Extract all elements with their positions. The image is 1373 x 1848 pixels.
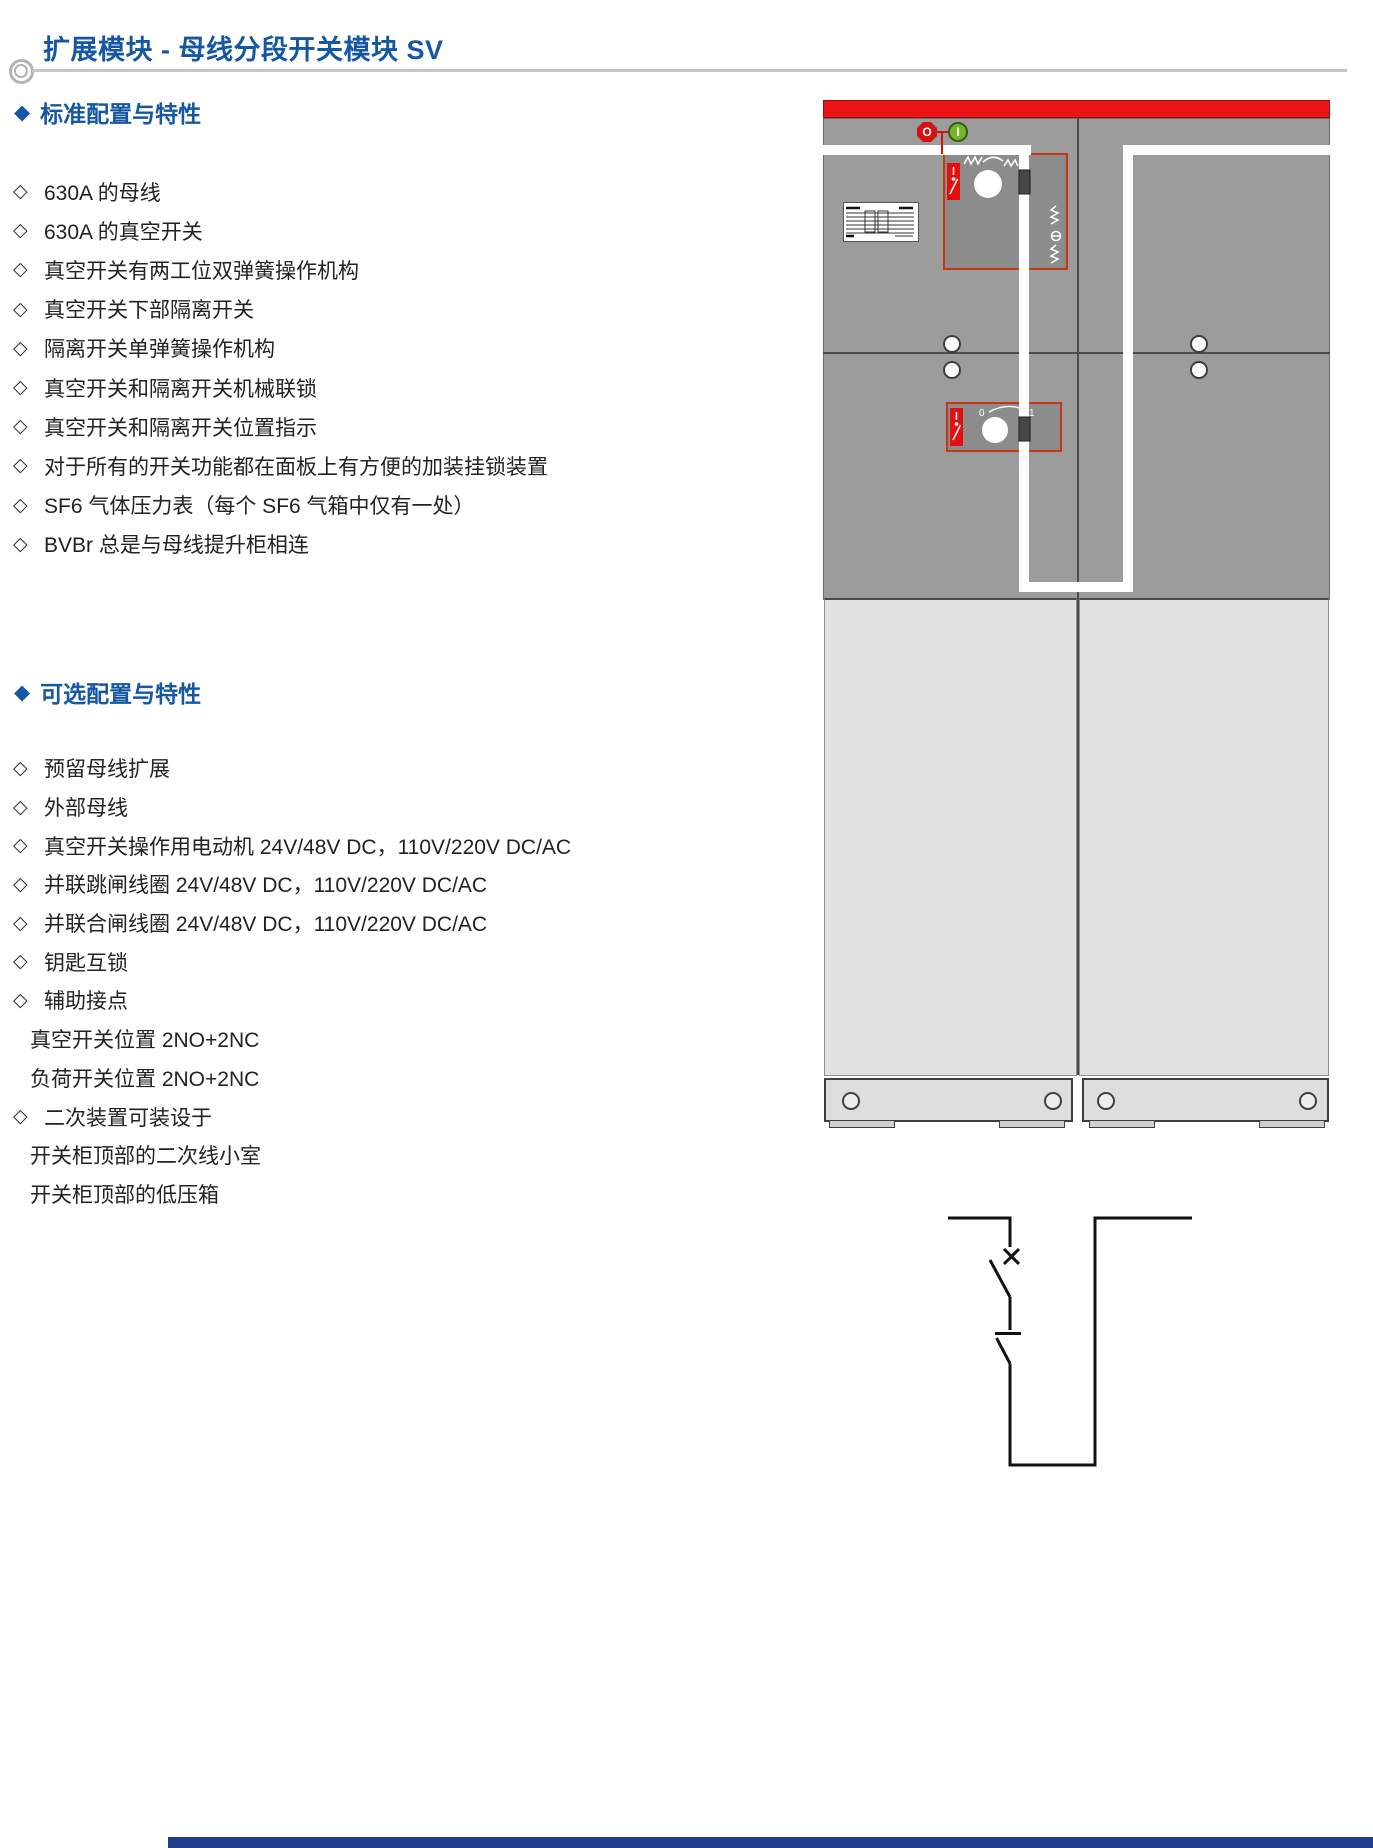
list-item: ◇真空开关下部隔离开关 [0,290,760,329]
switch-blade-upper [990,1260,1010,1297]
list-item: ◇630A 的母线 [0,172,760,211]
list-item: ◇对于所有的开关功能都在面板上有方便的加装挂锁装置 [0,446,760,485]
cabinet-foot [1259,1120,1325,1128]
plinth-bolt-icon [842,1092,860,1110]
disconnector-mechanism-box [946,402,1062,452]
feature-text: 开关柜顶部的二次线小室 [30,1140,261,1170]
list-item: ◇预留母线扩展 [0,749,760,788]
feature-text: 预留母线扩展 [44,753,170,783]
diamond-bullet-icon: ◇ [13,1105,35,1128]
feature-text: 真空开关和隔离开关位置指示 [44,412,317,442]
feature-text: BVBr 总是与母线提升柜相连 [44,529,309,559]
list-item: ◇630A 的真空开关 [0,211,760,250]
feature-text: 负荷开关位置 2NO+2NC [30,1063,259,1093]
off-pushbutton-icon: O [917,122,937,142]
on-pushbutton-icon: I [948,122,968,142]
section-heading-optional-config: ◆ 可选配置与特性 [14,677,201,707]
standard-feature-list: ◇630A 的母线 ◇630A 的真空开关 ◇真空开关有两工位双弹簧操作机构 ◇… [0,172,760,564]
cabinet-foot [829,1120,895,1128]
cabinet-right-lower-door [1079,598,1329,1076]
diamond-bullet-icon: ◇ [13,337,35,360]
feature-text: 隔离开关单弹簧操作机构 [44,333,275,363]
feature-text: 钥匙互锁 [44,947,128,977]
feature-text: 并联合闸线圈 24V/48V DC，110V/220V DC/AC [44,908,487,938]
plinth-bolt-icon [1044,1092,1062,1110]
header-ornament-inner-ring [14,64,28,78]
list-item: ◇并联合闸线圈 24V/48V DC，110V/220V DC/AC [0,904,760,943]
list-item: ◇隔离开关单弹簧操作机构 [0,329,760,368]
cabinet-red-top-bar [823,100,1330,118]
diamond-bullet-icon: ◇ [13,376,35,399]
cabinet-horizontal-seam [823,352,1330,354]
panel-screw-icon [1190,335,1208,353]
diamond-bullet-icon: ◇ [13,219,35,242]
vacuum-switch-symbol [1004,1249,1019,1264]
list-subitem: 负荷开关位置 2NO+2NC [0,1059,760,1098]
feature-text: 开关柜顶部的低压箱 [30,1179,219,1209]
diamond-bullet-icon: ◇ [13,873,35,896]
list-item: ◇钥匙互锁 [0,942,760,981]
diamond-bullet-icon: ◇ [13,757,35,780]
switchgear-front-view-figure: O I [823,100,1330,1130]
cabinet-panel-divider [1077,118,1079,1075]
section-heading-text: 标准配置与特性 [40,95,201,129]
feature-text: 对于所有的开关功能都在面板上有方便的加装挂锁装置 [44,451,548,481]
cabinet-left-plinth [824,1078,1073,1122]
list-subitem: 开关柜顶部的二次线小室 [0,1136,760,1175]
busbar-left-horizontal [823,145,1031,155]
busbar-bottom-connector [1019,582,1133,592]
rating-nameplate [843,202,919,242]
list-item: ◇二次装置可装设于 [0,1097,760,1136]
cabinet-foot [1089,1120,1155,1128]
list-item: ◇并联跳闸线圈 24V/48V DC，110V/220V DC/AC [0,865,760,904]
diamond-bullet-icon: ◇ [13,533,35,556]
plinth-bolt-icon [1097,1092,1115,1110]
footer-bar [168,1837,1373,1848]
section-heading-standard-config: ◆ 标准配置与特性 [14,97,201,127]
diamond-bullet-icon: ◇ [13,950,35,973]
panel-screw-icon [1190,361,1208,379]
list-item: ◇真空开关操作用电动机 24V/48V DC，110V/220V DC/AC [0,826,760,865]
diagram-bus-left [948,1218,1010,1247]
panel-screw-icon [943,335,961,353]
diamond-filled-icon: ◆ [14,100,30,125]
diagram-return-path [1010,1218,1192,1465]
page-title: 扩展模块 - 母线分段开关模块 SV [43,28,444,67]
list-item: ◇SF6 气体压力表（每个 SF6 气箱中仅有一处） [0,486,760,525]
feature-text: 二次装置可装设于 [44,1102,212,1132]
list-item: ◇BVBr 总是与母线提升柜相连 [0,525,760,564]
feature-text: 真空开关下部隔离开关 [44,294,254,324]
list-item: ◇外部母线 [0,788,760,827]
diamond-bullet-icon: ◇ [13,912,35,935]
list-subitem: 开关柜顶部的低压箱 [0,1175,760,1214]
feature-text: 并联跳闸线圈 24V/48V DC，110V/220V DC/AC [44,869,487,899]
diamond-bullet-icon: ◇ [13,834,35,857]
feature-text: 真空开关有两工位双弹簧操作机构 [44,255,359,285]
single-line-diagram [930,1190,1290,1530]
busbar-right-vertical [1123,145,1133,592]
list-item: ◇真空开关和隔离开关机械联锁 [0,368,760,407]
feature-text: 外部母线 [44,792,128,822]
diamond-bullet-icon: ◇ [13,415,35,438]
diamond-filled-icon: ◆ [14,680,30,705]
vacuum-switch-mechanism-box [943,153,1068,270]
list-item: ◇辅助接点 [0,981,760,1020]
diamond-bullet-icon: ◇ [13,180,35,203]
section-heading-text: 可选配置与特性 [40,675,201,709]
feature-text: 630A 的母线 [44,177,161,207]
cabinet-left-lower-door [824,598,1077,1076]
diamond-bullet-icon: ◇ [13,494,35,517]
feature-text: 辅助接点 [44,985,128,1015]
switch-blade-lower [997,1338,1011,1364]
optional-feature-list: ◇预留母线扩展 ◇外部母线 ◇真空开关操作用电动机 24V/48V DC，110… [0,749,760,1213]
list-item: ◇真空开关和隔离开关位置指示 [0,407,760,446]
feature-text: 630A 的真空开关 [44,216,203,246]
list-subitem: 真空开关位置 2NO+2NC [0,1020,760,1059]
cabinet-right-plinth [1082,1078,1329,1122]
list-item: ◇真空开关有两工位双弹簧操作机构 [0,250,760,289]
busbar-left-vertical [1019,145,1029,592]
header-divider-line [32,69,1347,72]
diamond-bullet-icon: ◇ [13,454,35,477]
cabinet-foot [999,1120,1065,1128]
feature-text: 真空开关和隔离开关机械联锁 [44,373,317,403]
diamond-bullet-icon: ◇ [13,298,35,321]
feature-text: SF6 气体压力表（每个 SF6 气箱中仅有一处） [44,490,475,520]
diamond-bullet-icon: ◇ [13,989,35,1012]
busbar-right-horizontal [1123,145,1330,155]
button-wire-vertical [941,132,943,154]
panel-screw-icon [943,361,961,379]
diamond-bullet-icon: ◇ [13,796,35,819]
feature-text: 真空开关位置 2NO+2NC [30,1024,259,1054]
feature-text: 真空开关操作用电动机 24V/48V DC，110V/220V DC/AC [44,831,571,861]
plinth-bolt-icon [1299,1092,1317,1110]
diamond-bullet-icon: ◇ [13,258,35,281]
